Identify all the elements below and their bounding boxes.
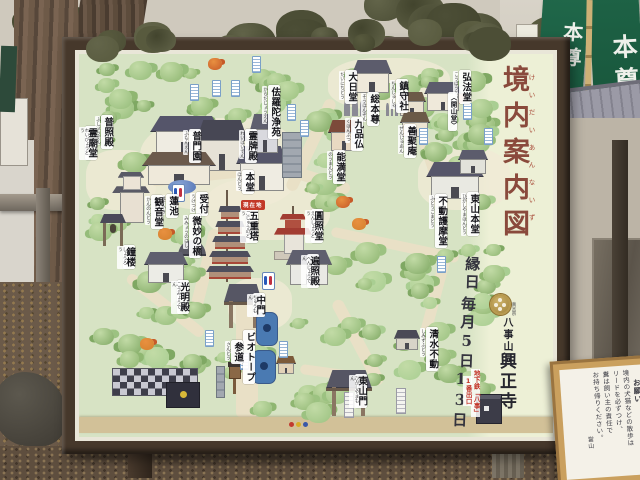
map-location-label: 普門園ふもんえん (189, 129, 201, 163)
tree-icon (470, 99, 493, 118)
map-location-label: 佉羅陀浄苑からだじょうえん (268, 85, 280, 139)
decor (120, 223, 123, 246)
tree-icon (425, 143, 447, 162)
decor (292, 206, 294, 214)
tree-icon (184, 68, 197, 79)
legend-dot (303, 422, 308, 427)
map-location-label: 普照殿ふしょうでん (101, 115, 113, 149)
decor (484, 406, 489, 411)
map-location-label: 能満堂のうまんどう (333, 150, 345, 184)
decor (285, 368, 287, 373)
decor (264, 276, 267, 285)
map-location-furigana: ほんどう (236, 171, 241, 191)
decor (369, 82, 374, 92)
decor (278, 363, 295, 374)
temple-grounds-map: 普照殿ふしょうでん霊廟堂れいびょうどう普門園ふもんえん佉羅陀浄苑からだじょうえん… (79, 54, 553, 437)
temple-crest-icon (490, 294, 511, 315)
map-location-label: 微妙の橋みみょうのはし (189, 214, 201, 258)
map-title-furigana: けいだいあんないず (526, 74, 536, 256)
decor (100, 214, 126, 223)
map-location-furigana: だいにちどう (339, 71, 344, 100)
map-location-furigana: ふもんえん (183, 130, 188, 155)
tree-tag (287, 104, 296, 121)
legend-dot (289, 422, 294, 427)
map-location-furigana: れいびょうどう (79, 127, 88, 160)
decor (179, 188, 182, 197)
decor (218, 227, 241, 234)
tree-icon (423, 297, 437, 309)
tree-icon (109, 89, 132, 109)
wood-lantern-icon (228, 362, 240, 394)
subway-exit-note: 地下鉄「八事」 (471, 369, 480, 417)
stone-pillar-icon (216, 366, 225, 398)
tree-tag (252, 56, 261, 73)
map-location-furigana: かんのんどう (145, 196, 150, 225)
map-location-label: ビオトープ (243, 330, 255, 384)
map-location-label: 総本尊そうほんぞん (367, 92, 379, 126)
tree-icon (324, 327, 346, 345)
checkered-wall-dark-icon (166, 382, 200, 408)
tree-icon (120, 351, 139, 367)
temple-name: 興正寺 (494, 352, 519, 412)
tree-tag (437, 256, 446, 273)
map-location-furigana: うけつけ (190, 193, 195, 213)
map-location-furigana: ごじゅうのとう (240, 210, 249, 243)
tree-icon (411, 283, 429, 299)
tree-icon (398, 360, 422, 380)
decor (259, 176, 266, 190)
map-location-label: 中門ちゅうもん (253, 293, 265, 317)
photo-of-temple-map-sign: 本尊 本尊 普照殿ふしょうでん霊廟堂れいびょうどう普門園ふもんえん佉羅陀浄苑から… (0, 0, 640, 480)
tree-tag (205, 330, 214, 347)
decor (471, 166, 475, 173)
map-location-label: 受付うけつけ (196, 192, 208, 216)
map-location-label: 鐘楼しょうろう (123, 245, 135, 269)
biotope-pond-lower-icon (252, 350, 276, 384)
tree-icon (367, 354, 383, 368)
tree-icon (139, 307, 154, 319)
map-location-furigana: ひがしやまほんどう (461, 193, 466, 236)
tree-icon (129, 61, 152, 80)
tree-tag (212, 80, 221, 97)
decor (209, 272, 251, 279)
map-location-label: 九品仏くほんぶつ (351, 117, 363, 151)
map-location-label: 五重塔ごじゅうのとう (246, 209, 258, 243)
decor (219, 154, 226, 170)
notice-sign: お願い 境内の犬猫などの散歩は リードを必ずつけ、 糞は飼い主の責任で お持ち帰… (550, 355, 640, 480)
tree-icon (483, 265, 504, 283)
decor (285, 220, 300, 228)
decor (263, 324, 271, 332)
tree-icon (355, 242, 381, 264)
subway-exit-note: 1番出口 (463, 376, 472, 406)
map-location-label: 鎮守社ちんじゅしゃ (396, 79, 408, 113)
mountain-name: 八事山 (499, 317, 514, 353)
wooden-fence-rail (0, 194, 70, 211)
tree-tag (231, 80, 240, 97)
map-location-label: 〈開山堂〉 (448, 92, 457, 131)
festival-dates: 毎月5日 (456, 296, 480, 372)
foliage (353, 34, 375, 52)
decor (163, 273, 169, 282)
foliage (86, 36, 119, 63)
decor (221, 212, 238, 219)
tree-tag (463, 103, 472, 120)
maple-tree-icon (158, 228, 172, 240)
foliage (146, 29, 176, 53)
decor (269, 276, 272, 285)
map-location-label: 光明殿こうみょうでん (177, 280, 189, 314)
map-location-furigana: のうまんどう (327, 151, 332, 180)
tree-icon (362, 324, 381, 340)
map-location-label: 観音堂かんのんどう (151, 195, 163, 229)
map-location-label: 大日堂だいにちどう (345, 70, 357, 104)
decor (110, 224, 116, 233)
map-location-furigana: ちゅうもん (247, 294, 256, 317)
dainichido-hall-icon (352, 60, 392, 94)
tree-icon (292, 318, 305, 329)
tree-tag (279, 341, 288, 358)
shoro-bell-tower-icon (100, 214, 126, 246)
map-location-furigana: ふどうごまどう (429, 195, 434, 229)
maple-tree-icon (208, 58, 222, 70)
maple-tree-icon (352, 218, 366, 230)
decor (352, 60, 392, 74)
map-location-furigana: さんどう (225, 341, 230, 361)
map-location-furigana: みみょうのはし (183, 215, 188, 249)
map-location-furigana: ひがしやまもん (349, 375, 358, 408)
map-location-label: 善聚庵ぜんじゅあん (404, 124, 416, 158)
decor (260, 362, 268, 370)
decor (229, 301, 233, 328)
background-banner-left (0, 46, 17, 113)
tree-icon (358, 278, 372, 290)
decor (441, 102, 446, 111)
map-location-label: 東山門ひがしやまもん (355, 374, 367, 408)
decor (263, 140, 267, 152)
biotope-pond-upper-icon (256, 312, 278, 346)
map-location-furigana: ぜんじゅあん (398, 125, 403, 154)
tree-icon (99, 63, 114, 76)
tree-icon (90, 197, 105, 210)
map-location-label: 蓮池はすいけ (166, 194, 178, 218)
you-are-here-marker: 現在地 (241, 200, 265, 210)
map-location-furigana: しみずふどう (420, 328, 425, 357)
decor (386, 103, 389, 116)
tree-tag (484, 128, 493, 145)
map-location-label: 弘法堂こうぼうどう (459, 70, 471, 104)
decor (396, 338, 418, 350)
fudo-gomado-hall-icon (458, 150, 488, 174)
notice-text: お願い 境内の犬猫などの散歩は リードを必ずつけ、 糞は飼い主の責任で お持ち帰… (564, 368, 640, 475)
tree-icon (93, 328, 114, 346)
map-location-furigana: こうみょうでん (171, 281, 180, 314)
decor (332, 387, 336, 416)
map-location-furigana: れいはいでん (239, 130, 244, 159)
map-location-furigana: くほんぶつ (345, 118, 350, 143)
tree-tag (190, 84, 199, 101)
map-location-label: 霊廟堂れいびょうどう (85, 126, 97, 160)
foliage (408, 19, 442, 46)
foliage (468, 27, 511, 61)
maple-tree-icon (140, 338, 154, 350)
small-shrine-icon (276, 356, 296, 374)
map-location-label: 本堂ほんどう (242, 170, 254, 194)
decor (280, 214, 307, 220)
map-location-furigana: からだじょうえん (262, 86, 267, 124)
sect-name: 真言宗 (510, 302, 516, 316)
shimizu-fudo-shrine-icon (394, 330, 420, 350)
maple-tree-icon (336, 196, 350, 208)
map-location-furigana: ちんじゅしゃ (390, 80, 395, 109)
legend-dot (296, 422, 301, 427)
map-location-furigana: へんじょうでん (301, 255, 310, 288)
decor (405, 343, 408, 349)
map-location-label: 圓照堂えんしょうどう (311, 209, 323, 243)
map-location-label: 参道さんどう (231, 340, 243, 364)
map-location-label: 遍照殿へんじょうでん (307, 254, 319, 288)
map-location-label: 東山本堂ひがしやまほんどう (467, 192, 479, 236)
karada-joen-monument-icon (282, 132, 302, 178)
map-location-label: 不動護摩堂ふどうごまどう (435, 194, 447, 248)
restroom-icon (262, 272, 275, 290)
tree-icon (253, 401, 271, 416)
decor (451, 187, 458, 198)
tree-icon (278, 81, 300, 99)
map-location-furigana: えんしょうどう (305, 210, 314, 243)
notice-paper: お願い 境内の犬猫などの散歩は リードを必ずつけ、 糞は飼い主の責任で お持ち帰… (559, 364, 640, 480)
decor (142, 152, 216, 166)
tree-icon (405, 253, 430, 274)
decor (460, 159, 485, 173)
tree-tag (300, 120, 309, 137)
map-location-furigana: しょうろう (117, 246, 126, 269)
tree-icon (137, 100, 151, 112)
decor (212, 257, 248, 264)
decor (103, 223, 106, 246)
tree-tag (419, 128, 428, 145)
tree-icon (160, 62, 183, 82)
decor (355, 73, 389, 93)
decor (215, 242, 245, 249)
map-location-label: 清水不動しみずふどう (426, 327, 438, 371)
festival-note: 縁日 (461, 256, 483, 293)
decor (123, 176, 140, 190)
small-banner (396, 388, 406, 414)
map-location-label: 霊牌殿れいはいでん (245, 129, 257, 163)
decor (180, 391, 187, 398)
